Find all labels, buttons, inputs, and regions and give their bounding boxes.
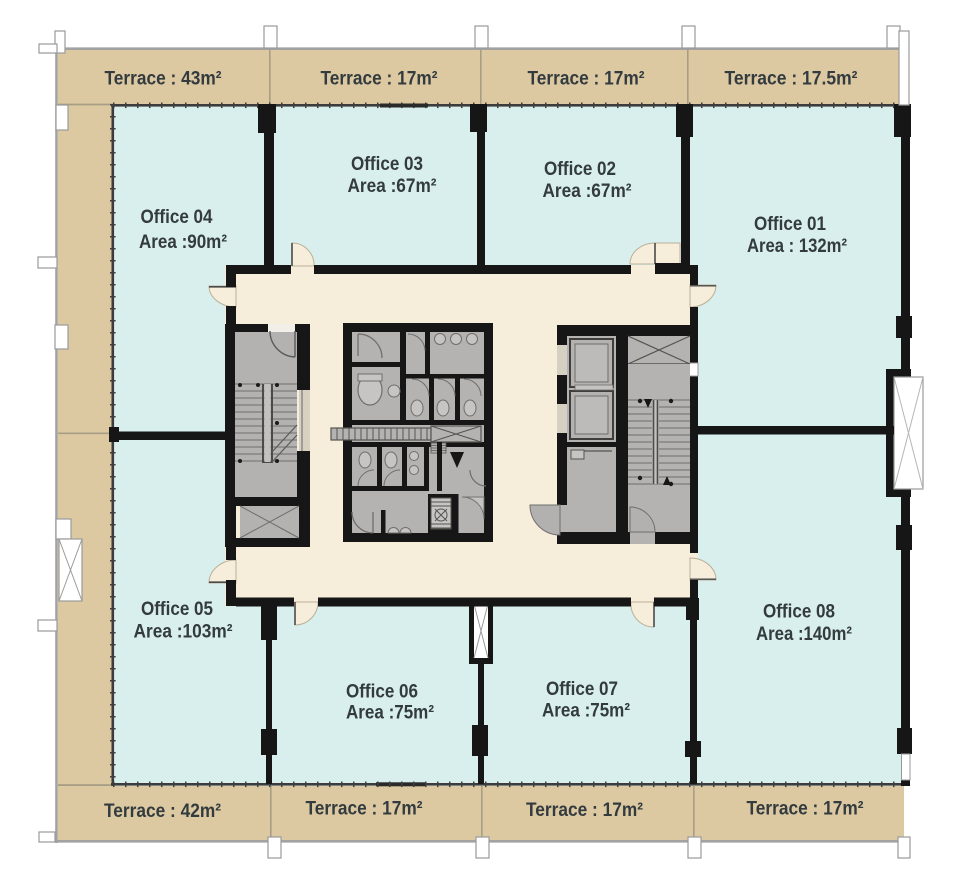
svg-text:Office 02: Office 02 bbox=[544, 159, 616, 180]
svg-text:Area :67m²: Area :67m² bbox=[348, 176, 437, 197]
svg-text:Office 06: Office 06 bbox=[346, 682, 418, 703]
svg-text:Area :90m²: Area :90m² bbox=[139, 232, 227, 253]
svg-text:Terrace : 17m²: Terrace : 17m² bbox=[306, 799, 423, 820]
svg-text:Office 03: Office 03 bbox=[351, 154, 423, 175]
svg-text:Area :140m²: Area :140m² bbox=[756, 624, 852, 645]
svg-text:Office 07: Office 07 bbox=[546, 679, 618, 700]
svg-text:Area : 132m²: Area : 132m² bbox=[747, 236, 847, 257]
svg-text:Terrace : 17m²: Terrace : 17m² bbox=[321, 69, 438, 90]
svg-text:Area :75m²: Area :75m² bbox=[542, 701, 630, 722]
svg-text:Area :103m²: Area :103m² bbox=[134, 622, 233, 643]
svg-text:Office 04: Office 04 bbox=[141, 207, 213, 228]
svg-text:Office 08: Office 08 bbox=[763, 602, 835, 623]
svg-text:Terrace : 17.5m²: Terrace : 17.5m² bbox=[725, 69, 858, 90]
svg-text:Terrace : 17m²: Terrace : 17m² bbox=[526, 800, 643, 821]
svg-text:Terrace : 17m²: Terrace : 17m² bbox=[528, 69, 645, 90]
svg-text:Terrace : 43m²: Terrace : 43m² bbox=[105, 69, 222, 90]
svg-text:Office 05: Office 05 bbox=[141, 599, 213, 620]
svg-text:Area :67m²: Area :67m² bbox=[543, 181, 632, 202]
svg-text:Office 01: Office 01 bbox=[754, 214, 826, 235]
svg-text:Terrace : 17m²: Terrace : 17m² bbox=[747, 799, 864, 820]
svg-text:Terrace : 42m²: Terrace : 42m² bbox=[104, 801, 221, 822]
svg-text:Area :75m²: Area :75m² bbox=[346, 703, 434, 724]
